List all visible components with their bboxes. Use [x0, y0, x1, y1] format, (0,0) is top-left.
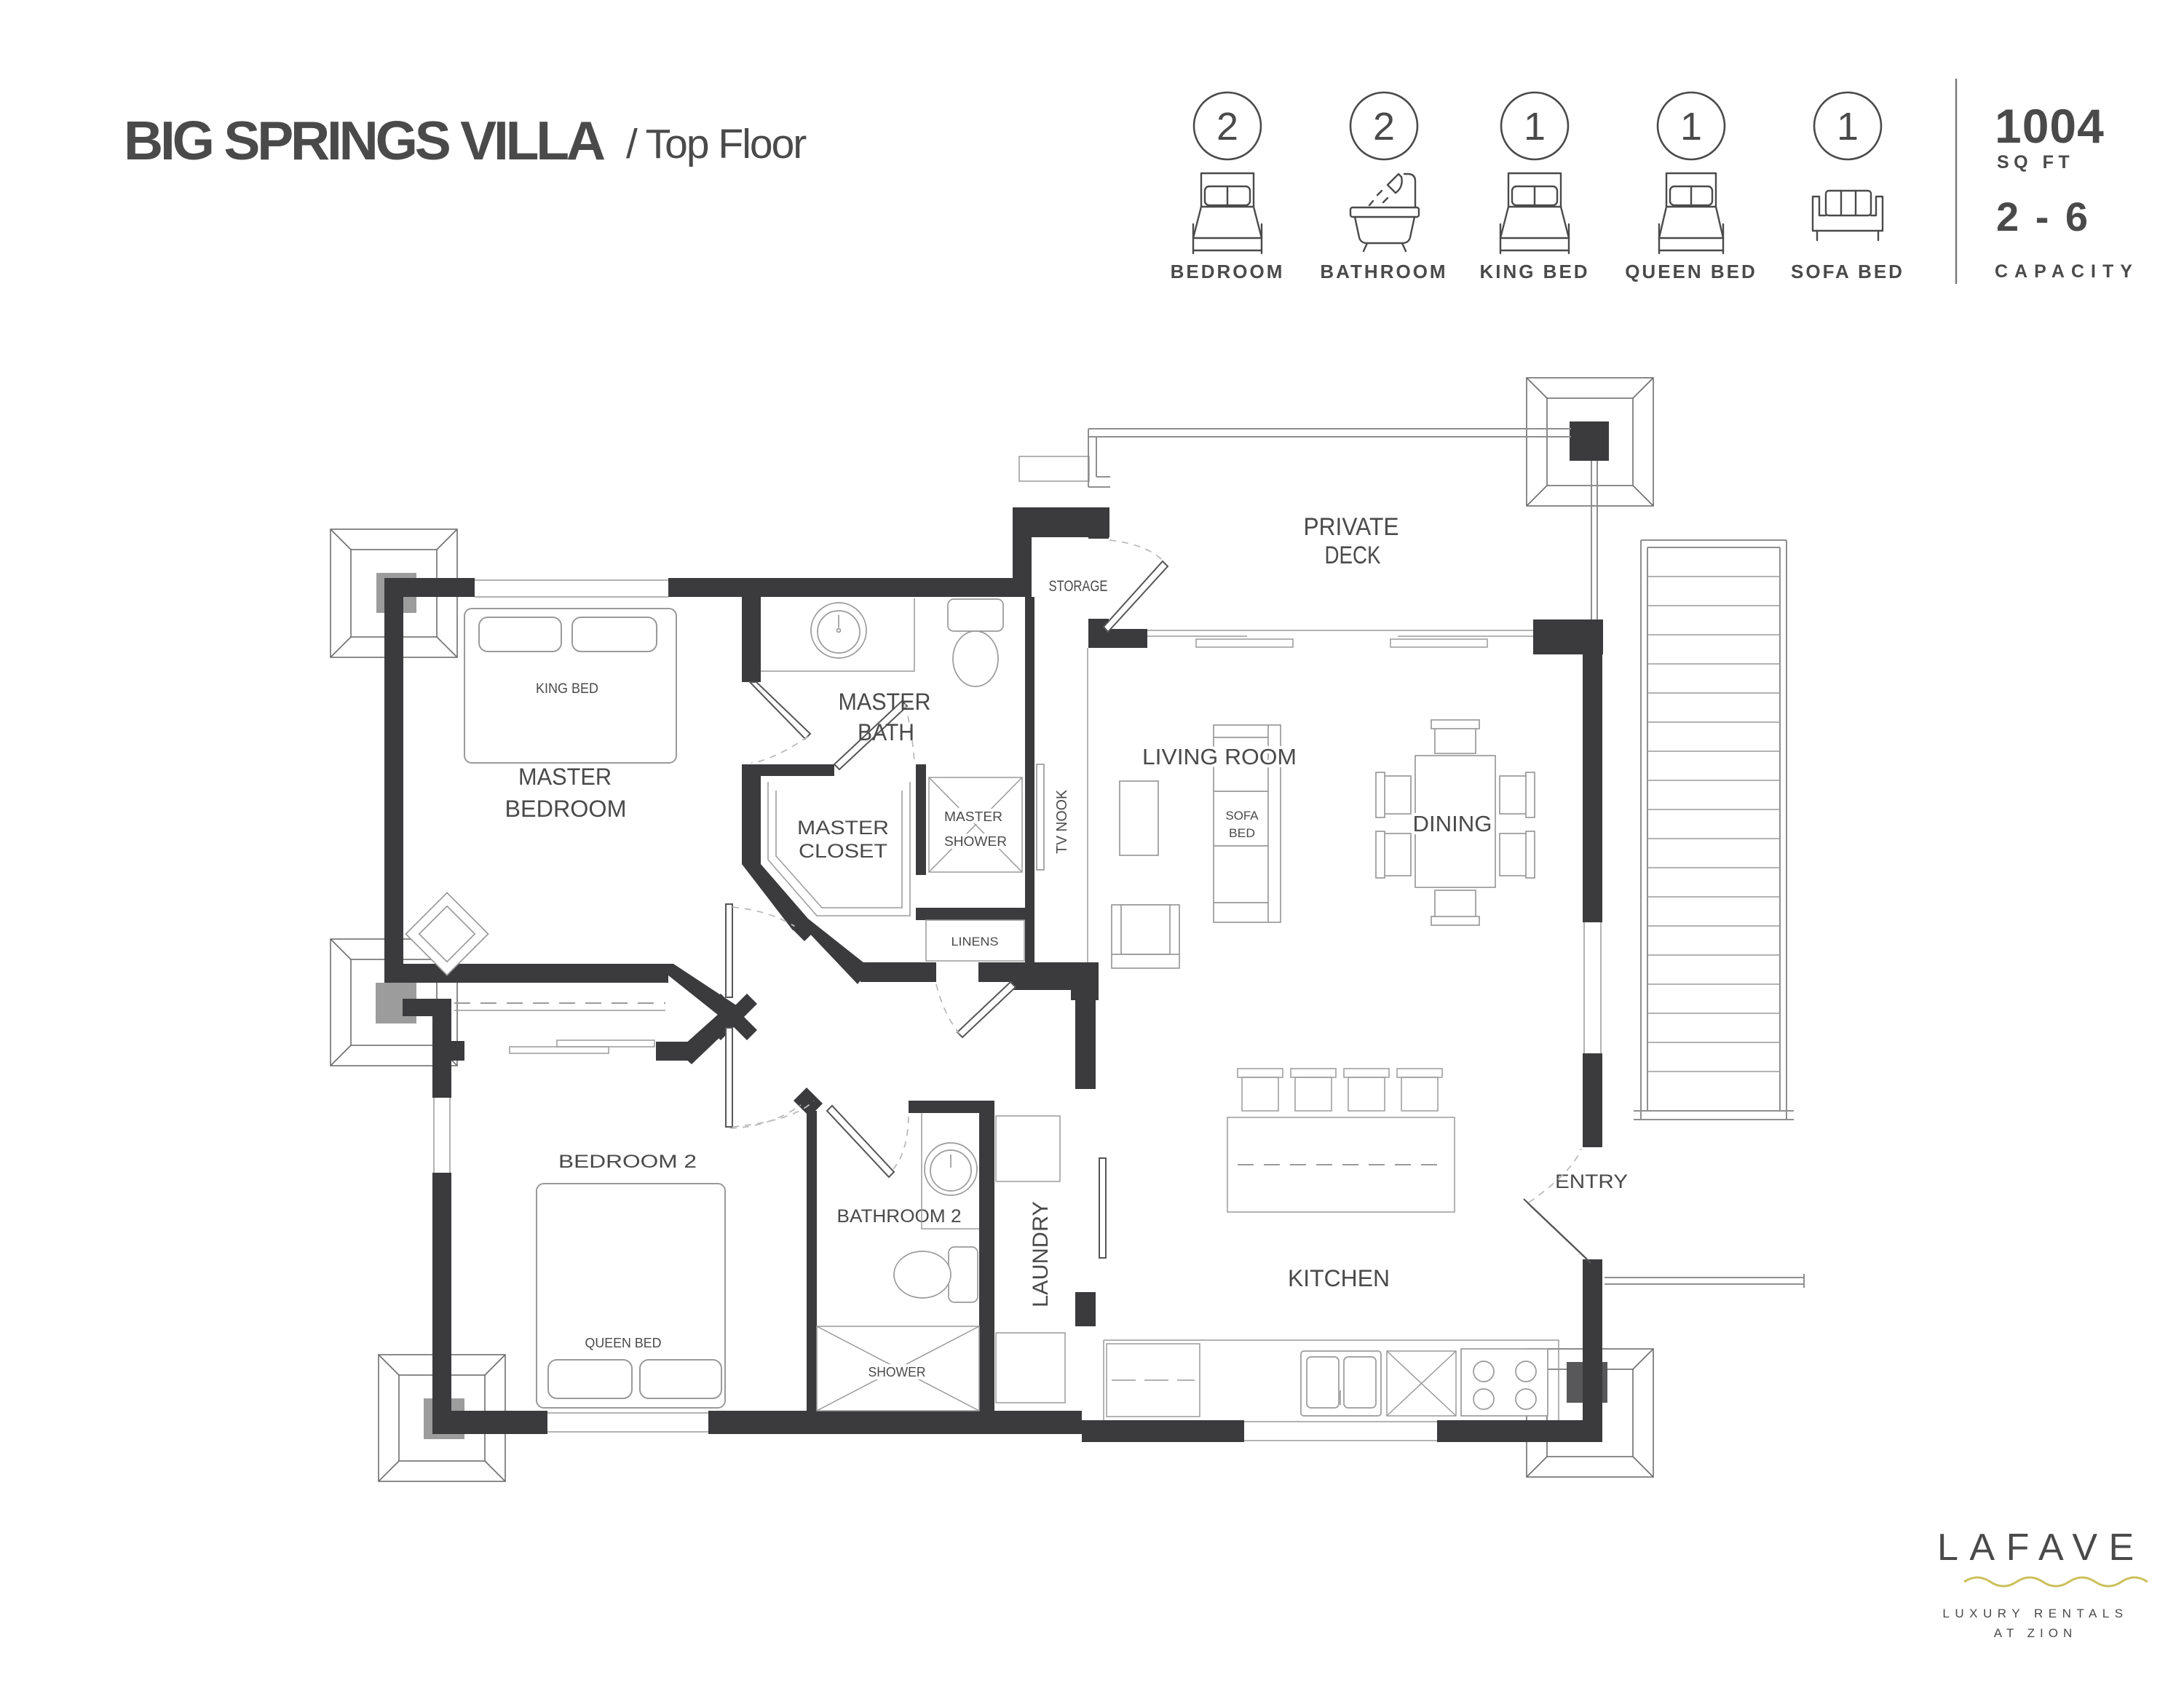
svg-text:LAUNDRY: LAUNDRY: [1029, 1201, 1053, 1307]
svg-text:BATHROOM: BATHROOM: [1320, 261, 1447, 282]
svg-text:MASTER: MASTER: [839, 689, 931, 715]
svg-text:KING BED: KING BED: [1479, 261, 1589, 282]
svg-text:QUEEN BED: QUEEN BED: [585, 1336, 662, 1350]
svg-text:KING BED: KING BED: [536, 681, 598, 697]
svg-text:KITCHEN: KITCHEN: [1288, 1265, 1390, 1291]
svg-text:BIG SPRINGS VILLA: BIG SPRINGS VILLA: [124, 110, 605, 171]
svg-text:/ Top Floor: / Top Floor: [626, 121, 807, 167]
svg-text:BATHROOM 2: BATHROOM 2: [837, 1206, 962, 1227]
svg-text:DECK: DECK: [1325, 542, 1381, 569]
svg-text:2: 2: [1373, 105, 1395, 148]
svg-text:TV NOOK: TV NOOK: [1054, 789, 1070, 854]
svg-text:CLOSET: CLOSET: [799, 840, 887, 862]
svg-text:SQ FT: SQ FT: [1997, 152, 2074, 173]
svg-text:BEDROOM 2: BEDROOM 2: [558, 1152, 697, 1172]
svg-text:SOFA: SOFA: [1226, 809, 1259, 823]
svg-text:CAPACITY: CAPACITY: [1995, 261, 2139, 282]
svg-text:LIVING ROOM: LIVING ROOM: [1142, 744, 1297, 769]
svg-text:SOFA BED: SOFA BED: [1791, 261, 1904, 282]
svg-text:MASTER: MASTER: [518, 764, 612, 790]
svg-text:1: 1: [1837, 105, 1859, 148]
svg-text:DINING: DINING: [1413, 811, 1492, 836]
svg-text:BEDROOM: BEDROOM: [505, 796, 627, 822]
svg-text:MASTER: MASTER: [797, 817, 889, 839]
svg-text:BED: BED: [1229, 826, 1255, 840]
svg-text:1: 1: [1524, 105, 1546, 148]
svg-text:PRIVATE: PRIVATE: [1304, 513, 1399, 541]
svg-text:1: 1: [1680, 105, 1702, 148]
svg-text:BATH: BATH: [858, 719, 914, 745]
svg-text:LINENS: LINENS: [951, 935, 999, 949]
svg-text:1004: 1004: [1995, 99, 2105, 153]
svg-text:SHOWER: SHOWER: [869, 1365, 926, 1379]
svg-text:ENTRY: ENTRY: [1555, 1171, 1628, 1192]
svg-text:LUXURY RENTALS: LUXURY RENTALS: [1942, 1607, 2128, 1620]
svg-text:LAFAVE: LAFAVE: [1937, 1526, 2145, 1569]
svg-text:BEDROOM: BEDROOM: [1171, 261, 1285, 282]
svg-text:MASTER: MASTER: [944, 809, 1002, 824]
svg-text:SHOWER: SHOWER: [944, 834, 1007, 849]
svg-text:2: 2: [1216, 105, 1238, 148]
svg-text:AT ZION: AT ZION: [1994, 1626, 2078, 1640]
svg-text:2 - 6: 2 - 6: [1996, 194, 2091, 239]
svg-text:QUEEN BED: QUEEN BED: [1625, 261, 1757, 282]
svg-text:STORAGE: STORAGE: [1049, 578, 1108, 595]
